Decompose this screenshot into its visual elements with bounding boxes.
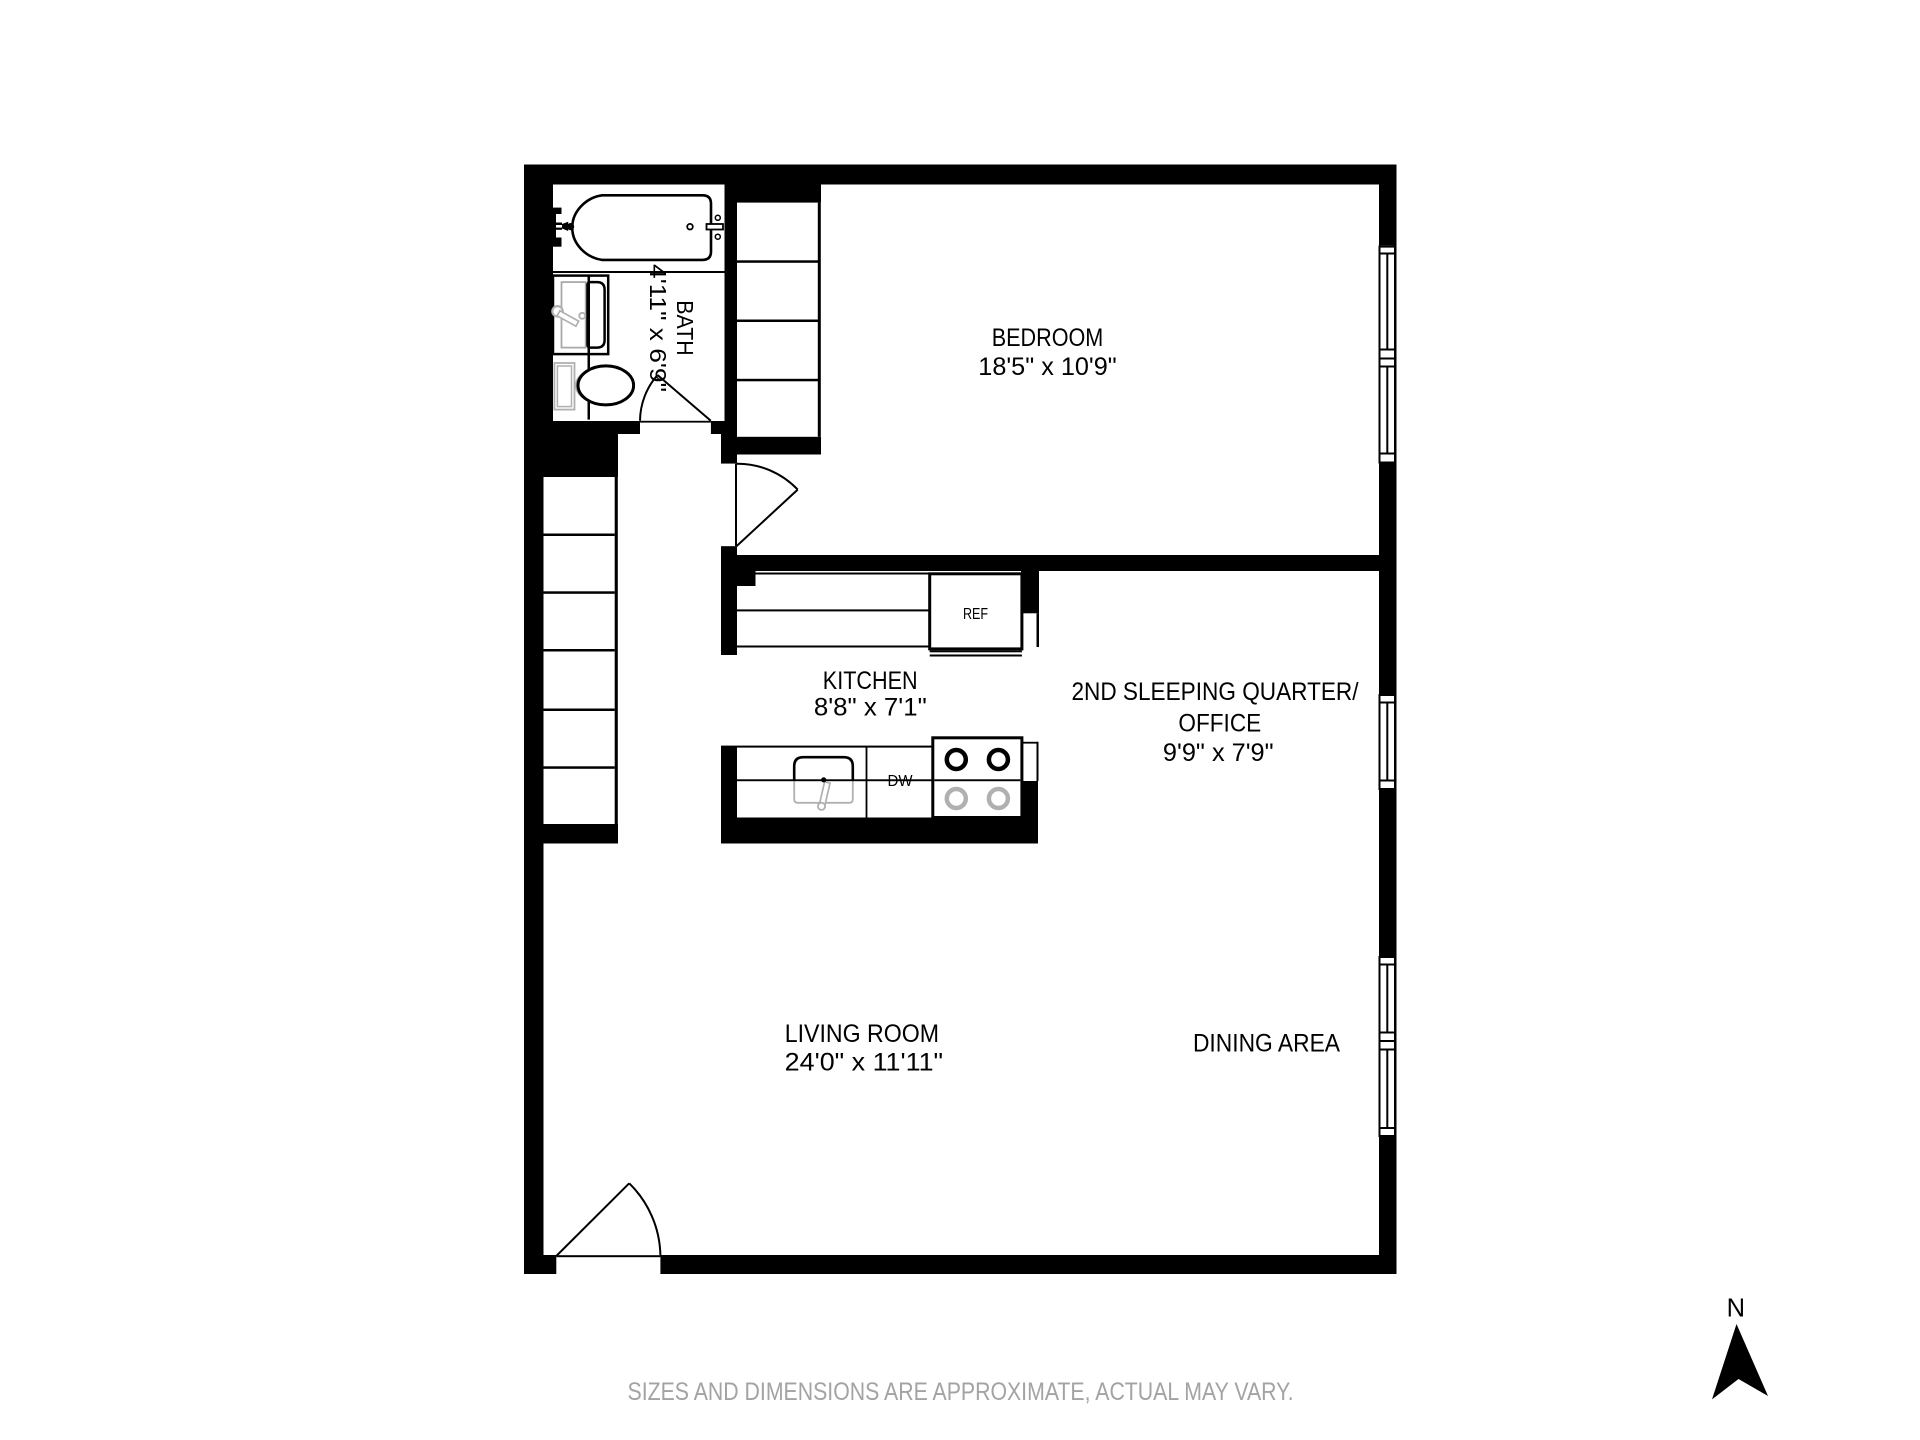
svg-text:18'5" x 10'9": 18'5" x 10'9" xyxy=(978,353,1116,381)
svg-text:9'9" x 7'9": 9'9" x 7'9" xyxy=(1163,739,1274,767)
svg-text:SIZES AND DIMENSIONS ARE APPRO: SIZES AND DIMENSIONS ARE APPROXIMATE, AC… xyxy=(628,1379,1294,1406)
svg-text:2ND SLEEPING QUARTER/: 2ND SLEEPING QUARTER/ xyxy=(1071,678,1358,706)
svg-text:N: N xyxy=(1727,1294,1745,1322)
svg-text:LIVING ROOM: LIVING ROOM xyxy=(785,1020,939,1048)
svg-text:4'11" x 6'9": 4'11" x 6'9" xyxy=(645,264,671,392)
svg-text:OFFICE: OFFICE xyxy=(1178,710,1261,738)
svg-text:DW: DW xyxy=(888,773,913,790)
svg-text:BEDROOM: BEDROOM xyxy=(992,324,1104,352)
svg-text:DINING AREA: DINING AREA xyxy=(1193,1030,1340,1058)
svg-text:REF: REF xyxy=(963,606,988,623)
svg-text:KITCHEN: KITCHEN xyxy=(823,667,918,695)
svg-text:BATH: BATH xyxy=(672,300,698,355)
svg-text:24'0" x 11'11": 24'0" x 11'11" xyxy=(785,1049,943,1077)
svg-text:8'8" x 7'1": 8'8" x 7'1" xyxy=(814,694,927,722)
